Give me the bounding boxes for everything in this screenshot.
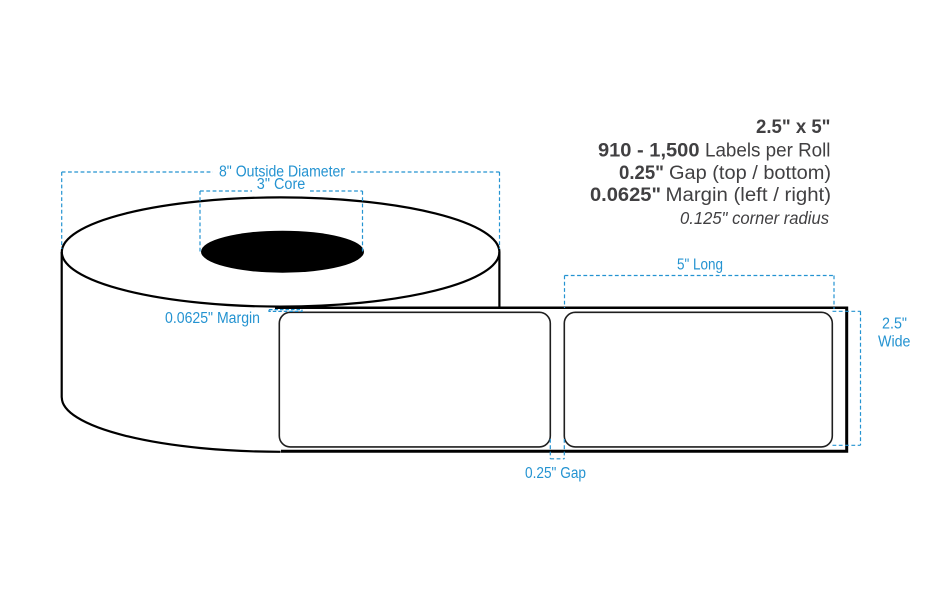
svg-text:910 - 1,500: 910 - 1,500 <box>598 140 700 161</box>
svg-text:0.0625" Margin: 0.0625" Margin <box>165 310 260 327</box>
svg-text:Margin (left / right): Margin (left / right) <box>666 185 832 206</box>
svg-text:Labels per Roll: Labels per Roll <box>705 140 831 161</box>
svg-text:2.5" x 5": 2.5" x 5" <box>756 117 831 138</box>
svg-text:0.125" corner radius: 0.125" corner radius <box>680 208 829 228</box>
svg-text:3" Core: 3" Core <box>257 176 306 193</box>
svg-text:Wide: Wide <box>878 333 911 350</box>
svg-text:5" Long: 5" Long <box>677 257 723 274</box>
svg-text:Gap (top / bottom): Gap (top / bottom) <box>669 163 831 184</box>
svg-text:0.25" Gap: 0.25" Gap <box>525 465 586 482</box>
svg-text:2.5": 2.5" <box>882 316 907 333</box>
svg-text:0.0625": 0.0625" <box>590 185 661 206</box>
svg-text:0.25": 0.25" <box>619 163 664 184</box>
